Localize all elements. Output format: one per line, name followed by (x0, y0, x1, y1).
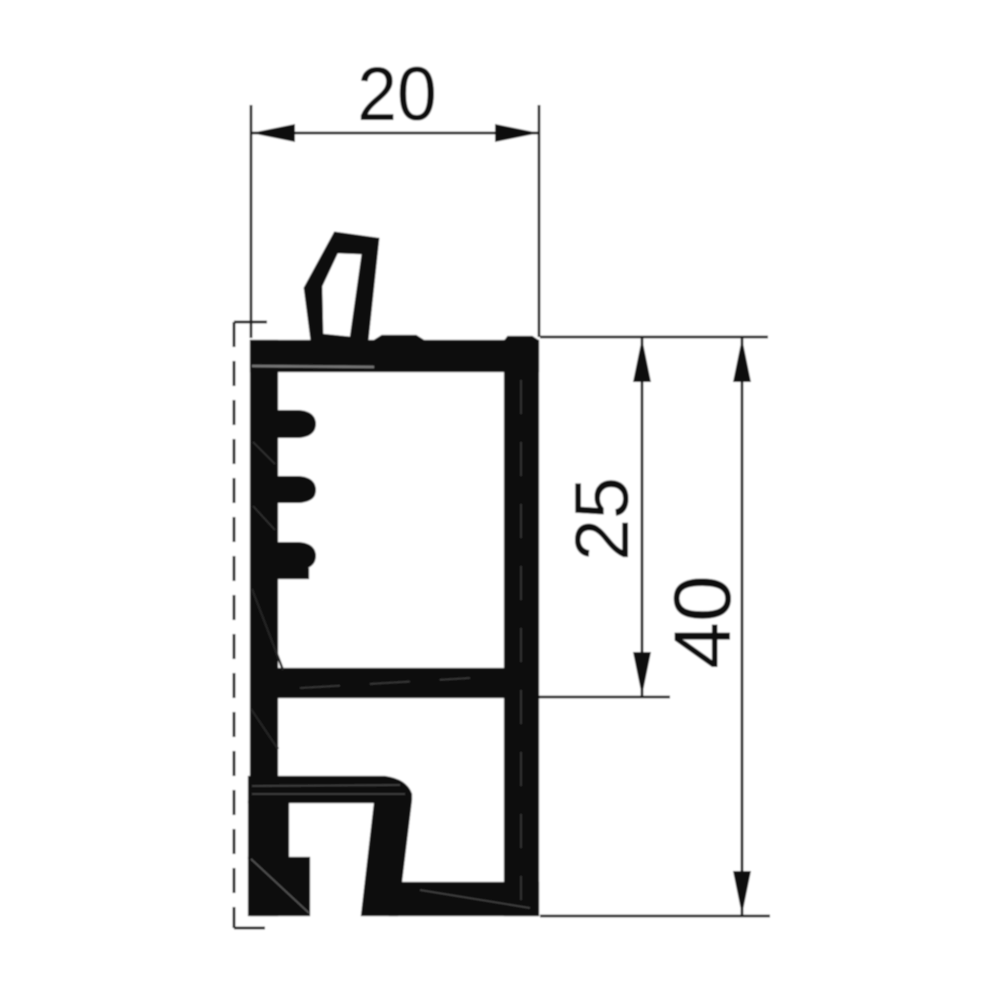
svg-text:40: 40 (656, 575, 747, 669)
svg-text:20: 20 (357, 51, 436, 137)
svg-text:25: 25 (561, 477, 645, 561)
